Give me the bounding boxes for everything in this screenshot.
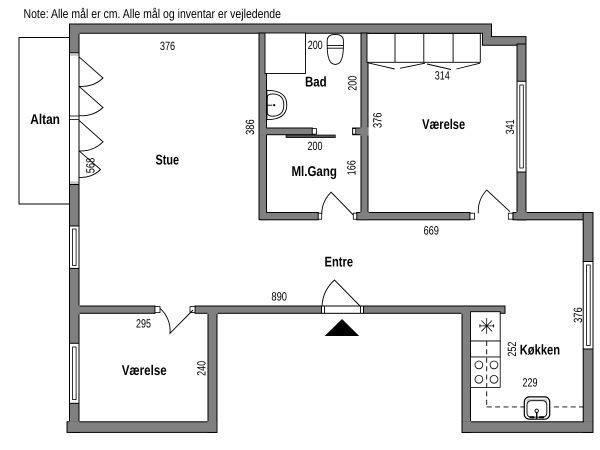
svg-text:240: 240 bbox=[195, 361, 209, 376]
svg-text:376: 376 bbox=[370, 112, 384, 128]
svg-text:229: 229 bbox=[523, 375, 538, 389]
svg-text:Værelse: Værelse bbox=[122, 363, 167, 379]
svg-text:166: 166 bbox=[345, 160, 359, 175]
svg-text:200: 200 bbox=[308, 139, 323, 153]
svg-text:Entre: Entre bbox=[325, 255, 354, 271]
svg-text:252: 252 bbox=[505, 341, 519, 356]
svg-text:568: 568 bbox=[83, 158, 97, 174]
svg-text:Ml.Gang: Ml.Gang bbox=[291, 164, 337, 180]
svg-text:Bad: Bad bbox=[305, 75, 327, 91]
svg-text:314: 314 bbox=[435, 69, 450, 83]
svg-text:Altan: Altan bbox=[30, 112, 60, 128]
svg-text:200: 200 bbox=[308, 38, 323, 52]
svg-text:Køkken: Køkken bbox=[520, 342, 560, 358]
svg-text:376: 376 bbox=[571, 307, 585, 323]
svg-text:386: 386 bbox=[243, 119, 257, 135]
svg-text:341: 341 bbox=[503, 119, 517, 134]
svg-text:376: 376 bbox=[160, 39, 176, 53]
svg-text:200: 200 bbox=[345, 76, 359, 91]
svg-text:Stue: Stue bbox=[156, 153, 180, 169]
svg-text:Værelse: Værelse bbox=[422, 117, 465, 133]
svg-text:Note: Alle mål er cm. Alle mål: Note: Alle mål er cm. Alle mål og invent… bbox=[24, 6, 282, 21]
svg-text:890: 890 bbox=[271, 289, 287, 303]
svg-text:295: 295 bbox=[136, 317, 151, 331]
svg-text:669: 669 bbox=[423, 224, 439, 238]
